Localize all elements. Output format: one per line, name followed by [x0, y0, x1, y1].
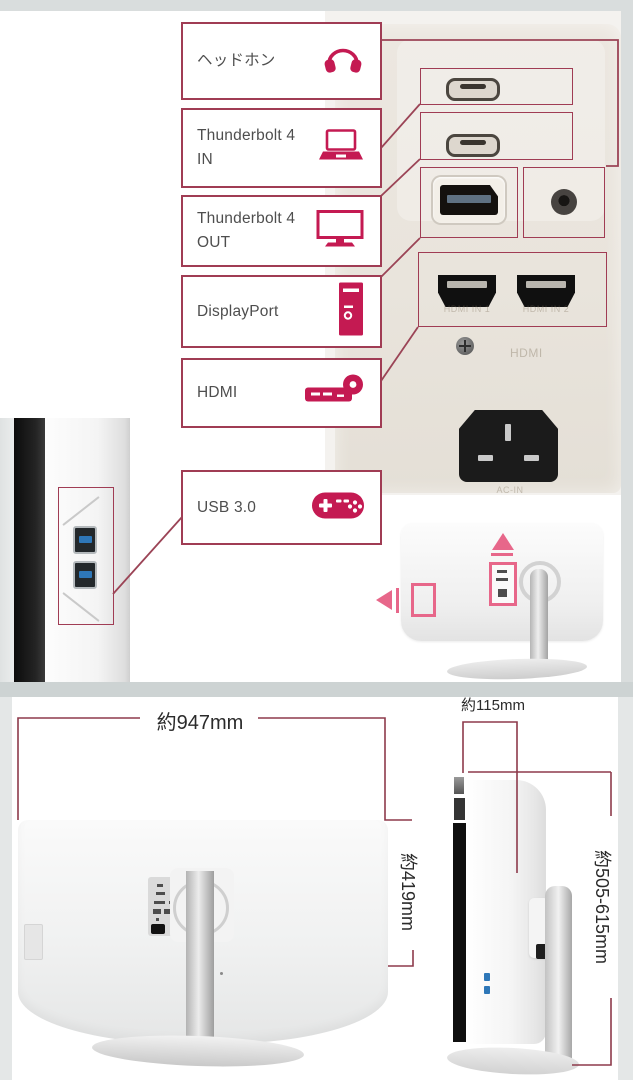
rear-side-usb-notch	[24, 924, 43, 960]
headphones-icon	[322, 41, 364, 82]
callout-usb: USB 3.0	[181, 470, 382, 545]
ac-pin-left	[478, 455, 493, 461]
mini-ports-highlight	[489, 562, 517, 606]
rear-port-mark	[157, 884, 163, 887]
hdmi-emboss: HDMI	[510, 346, 543, 360]
callout-rect-thunderbolt-in	[420, 68, 573, 105]
mini-stand-base	[447, 657, 588, 682]
right-border	[621, 0, 633, 700]
up-arrow-underline	[491, 553, 513, 556]
rear-port-mark	[154, 901, 165, 904]
callout-rect-displayport	[420, 167, 518, 238]
laptop-icon	[318, 129, 364, 168]
dimension-stand-height-label: 約505-615mm	[596, 812, 616, 1002]
callout-hdmi: HDMI	[181, 358, 382, 428]
mini-port-mark	[496, 578, 508, 581]
dimension-height-label: 約419mm	[402, 822, 422, 962]
monitor-ports-dimensions-infographic: HDMI IN 1 HDMI IN 2 HDMI AC-IN ヘッドホン Thu…	[0, 0, 633, 1080]
callout-rect-thunderbolt-out	[420, 112, 573, 160]
media-player-icon	[304, 374, 364, 413]
rear-port-mark	[156, 918, 159, 921]
monitor-icon	[316, 210, 364, 253]
dimension-width-label: 約947mm	[140, 706, 260, 735]
mini-side-usb-highlight	[411, 583, 436, 617]
side-screen-edge-top	[454, 777, 464, 794]
side-usb-dot	[484, 986, 490, 994]
side-usb-dot	[484, 973, 490, 981]
rear-port-mark	[156, 892, 165, 895]
ac-in-emboss: AC-IN	[480, 485, 540, 495]
side-stand-pole	[545, 886, 572, 1068]
callout-displayport: DisplayPort	[181, 275, 382, 348]
ac-pin-top	[505, 424, 511, 441]
desktop-tower-icon	[338, 281, 364, 342]
side-screen-edge	[453, 823, 466, 1042]
side-screen-edge-mid	[454, 798, 465, 820]
top-border	[0, 0, 633, 11]
up-arrow-icon	[492, 533, 514, 550]
ac-pin-right	[524, 455, 539, 461]
callout-thunderbolt-in: Thunderbolt 4 IN	[181, 108, 382, 188]
screw	[456, 337, 474, 355]
callout-rect-headphone	[523, 167, 605, 238]
mini-port-mark	[498, 589, 507, 597]
left-arrow-line	[396, 588, 399, 613]
dimension-depth-label: 約115mm	[443, 694, 543, 715]
callout-headphone: ヘッドホン	[181, 22, 382, 100]
mini-port-mark	[497, 570, 507, 573]
ac-power-inlet	[459, 410, 558, 482]
callout-rect-usb	[58, 487, 114, 625]
callout-rect-hdmi	[418, 252, 607, 327]
left-arrow-icon	[376, 590, 392, 610]
rear-button-dot	[220, 972, 223, 975]
screen-bezel	[14, 418, 45, 682]
rear-ac-inlet	[151, 924, 165, 934]
gamepad-icon	[312, 489, 364, 526]
callout-thunderbolt-out: Thunderbolt 4 OUT	[181, 195, 382, 267]
rear-port-mark	[153, 909, 161, 914]
